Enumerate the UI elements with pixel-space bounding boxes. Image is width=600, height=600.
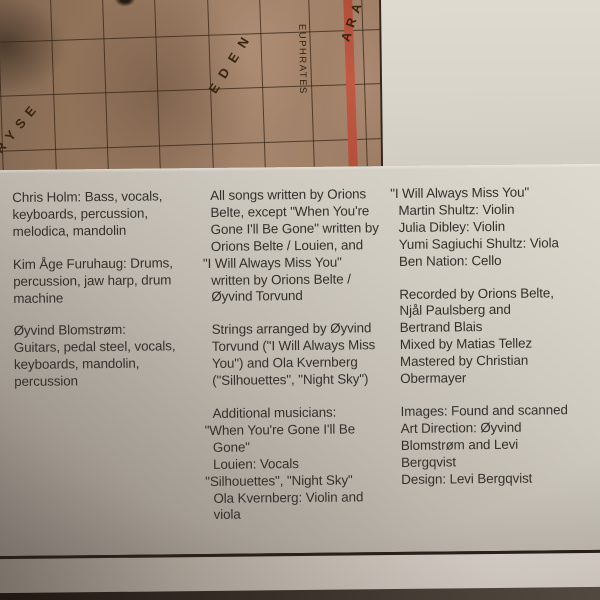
credits-paragraph: Kim Åge Furuhaug: Drums,percussion, jaw … [13, 255, 206, 308]
credits-column-production: "I Will Always Miss You"Martin Shultz: V… [398, 184, 593, 504]
mars-map-artwork: HRYSE EDEN EUPHRATES ARA [0, 0, 383, 174]
credits-line: Chris Holm: Bass, vocals, [12, 188, 204, 207]
credits-line: Obermayer [400, 369, 592, 388]
credits-line: Martin Shultz: Violin [398, 201, 590, 220]
credits-line: Bergqvist [401, 453, 593, 472]
credits-line: Øyvind Blomstrøm: [14, 321, 206, 340]
credits-line: "Silhouettes", "Night Sky" [213, 472, 401, 491]
credits-paragraph: Chris Holm: Bass, vocals,keyboards, perc… [12, 188, 205, 241]
credits-paragraph: "I Will Always Miss You"Martin Shultz: V… [398, 184, 591, 271]
map-grid-line [154, 0, 162, 174]
credits-line: viola [214, 505, 402, 524]
credits-paragraph: Strings arranged by ØyvindTorvund ("I Wi… [212, 320, 401, 390]
credits-line: Julia Dibley: Violin [399, 218, 591, 237]
credits-line: Ola Kvernberg: Violin and [213, 488, 401, 507]
map-grid-line [50, 0, 58, 174]
credits-line: Yumi Sagiuchi Shultz: Viola [399, 235, 591, 254]
credits-line: percussion [14, 372, 206, 391]
credits-line: ("Silhouettes", "Night Sky") [212, 371, 400, 390]
credits-card: Chris Holm: Bass, vocals,keyboards, perc… [0, 164, 600, 560]
credits-line: Art Direction: Øyvind [401, 419, 593, 438]
credits-paragraph: Øyvind Blomstrøm:Guitars, pedal steel, v… [14, 321, 207, 391]
credits-line: Bertrand Blais [400, 318, 592, 337]
credits-line: You") and Ola Kvernberg [212, 354, 400, 373]
credits-line: Mastered by Christian [400, 352, 592, 371]
credits-line: Gone I'll Be Gone" written by [211, 220, 399, 239]
credits-line: Kim Åge Furuhaug: Drums, [13, 255, 205, 274]
credits-line: Njål Paulsberg and [399, 301, 591, 320]
credits-line: Øyvind Torvund [211, 287, 399, 306]
credits-line: keyboards, mandolin, [14, 355, 206, 374]
credits-column-musicians: Chris Holm: Bass, vocals,keyboards, perc… [12, 188, 206, 407]
map-grid-line [0, 82, 383, 97]
credits-line: Blomstrøm and Levi [401, 436, 593, 455]
map-label-euphrates: EUPHRATES [296, 24, 308, 95]
credits-column-songwriting: All songs written by OrionsBelte, except… [210, 186, 402, 540]
credits-line: Recorded by Orions Belte, [399, 284, 591, 303]
credits-paragraph: Additional musicians:"When You're Gone I… [212, 404, 401, 524]
credits-line: written by Orions Belte / [211, 270, 399, 289]
credits-line: Mixed by Matias Tellez [400, 335, 592, 354]
credits-line: Gone" [213, 438, 401, 457]
credits-line: Torvund ("I Will Always Miss [212, 337, 400, 356]
credits-line: melodica, mandolin [13, 222, 205, 241]
credits-paragraph: Images: Found and scannedArt Direction: … [400, 402, 593, 489]
map-grid-line [307, 0, 315, 174]
credits-line: All songs written by Orions [210, 186, 398, 205]
map-grid-line [0, 28, 383, 43]
map-grid-line [0, 137, 383, 152]
credits-line: machine [13, 289, 205, 308]
credits-line: Guitars, pedal steel, vocals, [14, 338, 206, 357]
credits-line: Orions Belte / Louien, and [211, 237, 399, 256]
album-insert-photo: HRYSE EDEN EUPHRATES ARA Chris Holm: Bas… [0, 0, 600, 600]
credits-line: "I Will Always Miss You" [211, 254, 399, 273]
credits-line: Additional musicians: [212, 404, 400, 423]
map-grid-line [360, 0, 368, 174]
credits-line: "When You're Gone I'll Be [213, 421, 401, 440]
credits-line: Louien: Vocals [213, 455, 401, 474]
credits-line: "I Will Always Miss You" [398, 184, 590, 203]
credits-line: keyboards, percussion, [12, 205, 204, 224]
map-grid [0, 0, 383, 174]
credits-line: percussion, jaw harp, drum [13, 272, 205, 291]
credits-line: Images: Found and scanned [400, 402, 592, 421]
credits-paragraph: Recorded by Orions Belte,Njål Paulsberg … [399, 284, 592, 387]
credits-line: Belte, except "When You're [210, 203, 398, 222]
credits-line: Strings arranged by Øyvind [212, 320, 400, 339]
credits-line: Ben Nation: Cello [399, 252, 591, 271]
map-card: HRYSE EDEN EUPHRATES ARA [0, 0, 600, 176]
credits-paragraph: All songs written by OrionsBelte, except… [210, 186, 399, 306]
credits-line: Design: Levi Bergqvist [401, 470, 593, 489]
